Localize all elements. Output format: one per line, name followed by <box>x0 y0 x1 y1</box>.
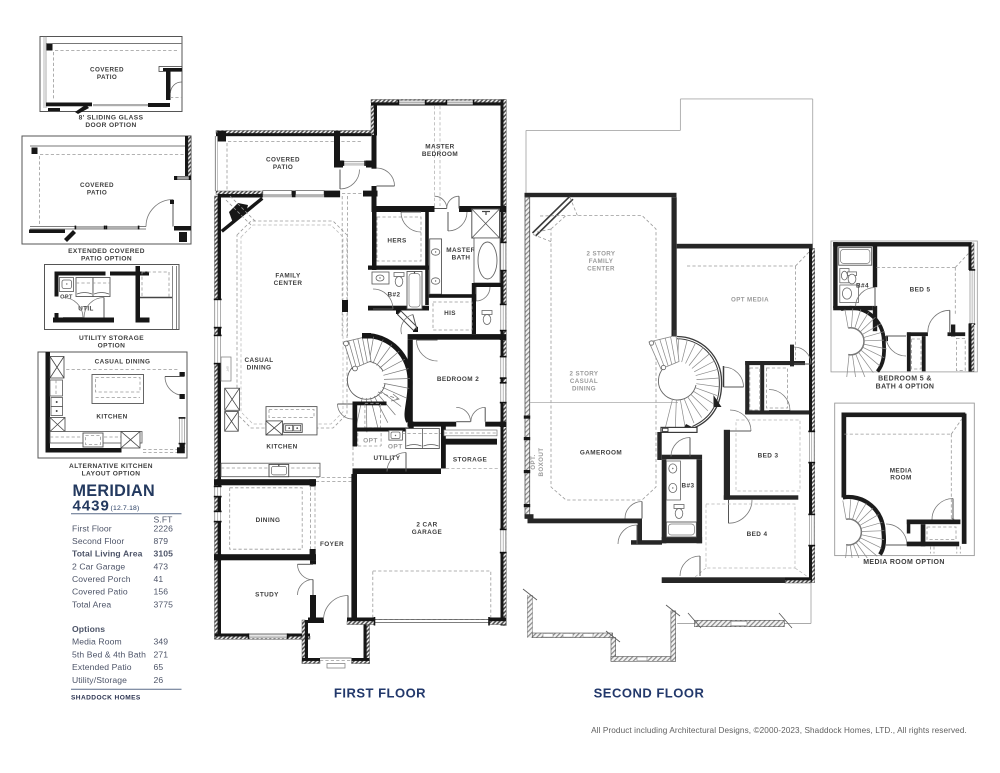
svg-text:FAMILY: FAMILY <box>275 273 301 280</box>
svg-text:MEDIA ROOM OPTION: MEDIA ROOM OPTION <box>863 559 945 566</box>
svg-text:5th Bed & 4th Bath: 5th Bed & 4th Bath <box>72 649 146 659</box>
svg-text:Second Floor: Second Floor <box>72 536 124 546</box>
svg-text:BED 4: BED 4 <box>747 531 768 538</box>
svg-text:OPT.: OPT. <box>530 454 537 469</box>
svg-text:Options: Options <box>72 624 105 634</box>
svg-text:DINING: DINING <box>247 365 272 372</box>
svg-text:ROOM: ROOM <box>890 475 911 482</box>
svg-text:BATH: BATH <box>452 255 471 262</box>
svg-text:BOXOUT: BOXOUT <box>538 448 545 477</box>
svg-text:SHADDOCK HOMES: SHADDOCK HOMES <box>71 695 141 702</box>
svg-text:2 CAR: 2 CAR <box>416 522 437 529</box>
svg-text:Covered Porch: Covered Porch <box>72 574 131 584</box>
svg-text:All Product including Architec: All Product including Architectural Desi… <box>591 726 967 735</box>
svg-text:UTILITY: UTILITY <box>374 455 401 462</box>
svg-text:First Floor: First Floor <box>72 523 112 533</box>
svg-text:BEDROOM: BEDROOM <box>422 151 458 158</box>
svg-text:LAYOUT OPTION: LAYOUT OPTION <box>82 471 141 478</box>
svg-text:(12.7.18): (12.7.18) <box>111 505 140 512</box>
svg-text:2 Car Garage: 2 Car Garage <box>72 561 125 571</box>
svg-text:PATIO: PATIO <box>87 190 107 197</box>
svg-text:COVERED: COVERED <box>266 157 300 164</box>
svg-text:STUDY: STUDY <box>255 592 279 599</box>
svg-text:CASUAL DINING: CASUAL DINING <box>95 359 151 366</box>
svg-text:271: 271 <box>154 649 169 659</box>
svg-text:MEDIA: MEDIA <box>890 468 913 475</box>
svg-text:3775: 3775 <box>154 599 174 609</box>
svg-text:DINING: DINING <box>256 517 281 524</box>
svg-text:FIRST FLOOR: FIRST FLOOR <box>334 686 426 701</box>
svg-text:156: 156 <box>154 587 169 597</box>
svg-text:ALTERNATIVE KITCHEN: ALTERNATIVE KITCHEN <box>69 463 153 470</box>
svg-text:BATH 4 OPTION: BATH 4 OPTION <box>876 384 935 391</box>
svg-text:COVERED: COVERED <box>90 67 124 74</box>
svg-text:OPT: OPT <box>226 366 230 372</box>
svg-text:Media Room: Media Room <box>72 637 122 647</box>
svg-text:STORAGE: STORAGE <box>453 457 488 464</box>
svg-text:BED 5: BED 5 <box>910 287 931 294</box>
svg-text:CENTER: CENTER <box>587 266 615 273</box>
svg-text:B#4: B#4 <box>856 283 869 290</box>
svg-text:4439: 4439 <box>73 498 110 515</box>
svg-text:Utility/Storage: Utility/Storage <box>72 675 127 685</box>
svg-text:OPT: OPT <box>363 438 378 445</box>
svg-text:GAMEROOM: GAMEROOM <box>580 450 622 457</box>
svg-text:UTILITY STORAGE: UTILITY STORAGE <box>79 335 144 342</box>
svg-text:349: 349 <box>154 637 169 647</box>
svg-text:PATIO OPTION: PATIO OPTION <box>81 256 132 263</box>
svg-text:Total Area: Total Area <box>72 599 111 609</box>
svg-text:GARAGE: GARAGE <box>412 529 443 536</box>
svg-text:Covered Patio: Covered Patio <box>72 587 128 597</box>
svg-text:CASUAL: CASUAL <box>244 357 273 364</box>
svg-text:3105: 3105 <box>154 549 174 559</box>
svg-text:HIS: HIS <box>444 310 456 317</box>
svg-text:OPT: OPT <box>388 444 403 451</box>
svg-text:MASTER: MASTER <box>446 247 475 254</box>
svg-text:DOOR OPTION: DOOR OPTION <box>85 122 136 129</box>
svg-text:BED 3: BED 3 <box>758 453 779 460</box>
svg-text:65: 65 <box>154 662 164 672</box>
svg-text:879: 879 <box>154 536 169 546</box>
svg-text:HERS: HERS <box>387 238 407 245</box>
svg-text:EXTENDED COVERED: EXTENDED COVERED <box>68 248 145 255</box>
svg-text:41: 41 <box>154 574 164 584</box>
svg-text:OPT MEDIA: OPT MEDIA <box>731 297 769 304</box>
svg-text:473: 473 <box>154 561 169 571</box>
svg-text:26: 26 <box>154 675 164 685</box>
svg-text:DINING: DINING <box>572 386 596 393</box>
svg-text:SECOND FLOOR: SECOND FLOOR <box>594 686 705 701</box>
svg-text:OPTION: OPTION <box>98 343 126 350</box>
svg-text:2226: 2226 <box>154 523 174 533</box>
svg-text:FAMILY: FAMILY <box>589 258 614 265</box>
svg-text:BEDROOM 5 &: BEDROOM 5 & <box>878 376 932 383</box>
svg-text:Extended Patio: Extended Patio <box>72 662 132 672</box>
svg-text:CASUAL: CASUAL <box>570 378 598 385</box>
svg-text:KITCHEN: KITCHEN <box>266 444 297 451</box>
svg-text:2 STORY: 2 STORY <box>587 251 616 258</box>
svg-text:MASTER: MASTER <box>425 144 454 151</box>
svg-text:BEDROOM 2: BEDROOM 2 <box>437 376 479 383</box>
svg-text:COVERED: COVERED <box>80 182 114 189</box>
svg-text:8' SLIDING GLASS: 8' SLIDING GLASS <box>79 115 144 122</box>
svg-text:FOYER: FOYER <box>320 541 344 548</box>
svg-text:PATIO: PATIO <box>97 74 117 81</box>
svg-text:CENTER: CENTER <box>274 280 303 287</box>
svg-text:B#3: B#3 <box>682 483 695 490</box>
svg-text:2 STORY: 2 STORY <box>570 371 599 378</box>
svg-text:KITCHEN: KITCHEN <box>96 414 127 421</box>
svg-text:Total Living Area: Total Living Area <box>72 549 143 559</box>
svg-text:PATIO: PATIO <box>273 164 293 171</box>
